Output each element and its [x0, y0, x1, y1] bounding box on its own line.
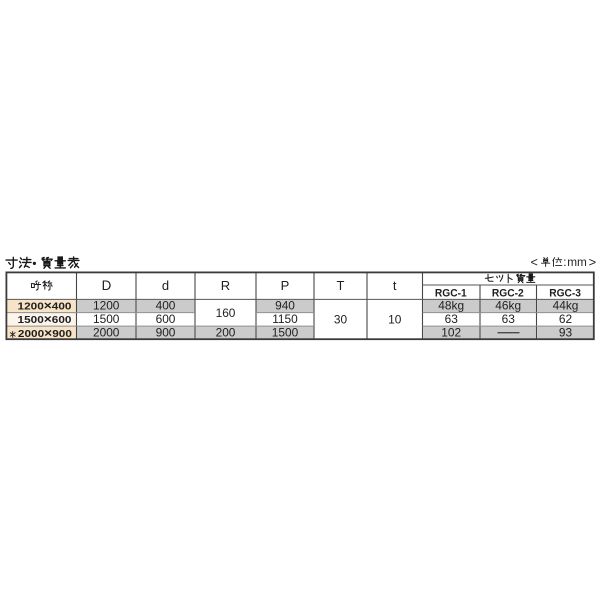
svg-text:940: 940 [275, 299, 295, 313]
svg-text:63: 63 [502, 312, 516, 326]
svg-text:RGC-1: RGC-1 [435, 287, 467, 299]
svg-text:mm: mm [567, 255, 587, 269]
svg-text:900: 900 [156, 326, 176, 340]
svg-text:2000×900: 2000×900 [18, 327, 72, 340]
svg-text:44kg: 44kg [553, 299, 579, 313]
svg-text:1500×600: 1500×600 [18, 312, 72, 325]
svg-text:2000: 2000 [93, 326, 120, 340]
svg-text:R: R [221, 278, 230, 293]
svg-text:>: > [589, 255, 597, 270]
svg-text:46kg: 46kg [495, 299, 521, 313]
svg-text:1500: 1500 [272, 326, 299, 340]
svg-text:62: 62 [559, 312, 573, 326]
svg-text:102: 102 [441, 326, 461, 340]
svg-text:160: 160 [216, 306, 236, 320]
svg-text:200: 200 [216, 326, 236, 340]
svg-text:P: P [281, 278, 290, 293]
svg-text:1200×400: 1200×400 [18, 299, 72, 312]
svg-text::: : [563, 257, 566, 269]
svg-text:30: 30 [334, 313, 348, 327]
svg-text:<: < [531, 255, 538, 269]
svg-text:10: 10 [388, 313, 402, 327]
svg-text:1500: 1500 [93, 312, 120, 326]
svg-text:D: D [102, 278, 112, 293]
svg-text:RGC-2: RGC-2 [492, 287, 524, 299]
svg-text:1200: 1200 [93, 299, 120, 313]
svg-text:t: t [393, 278, 397, 293]
svg-text:400: 400 [156, 299, 176, 313]
svg-text:93: 93 [559, 326, 573, 340]
svg-text:63: 63 [445, 312, 459, 326]
svg-text:600: 600 [156, 312, 176, 326]
svg-text:d: d [162, 278, 169, 293]
svg-text:1150: 1150 [272, 312, 298, 326]
svg-text:48kg: 48kg [438, 299, 464, 313]
svg-text:T: T [337, 278, 345, 293]
svg-text:RGC-3: RGC-3 [549, 287, 581, 299]
